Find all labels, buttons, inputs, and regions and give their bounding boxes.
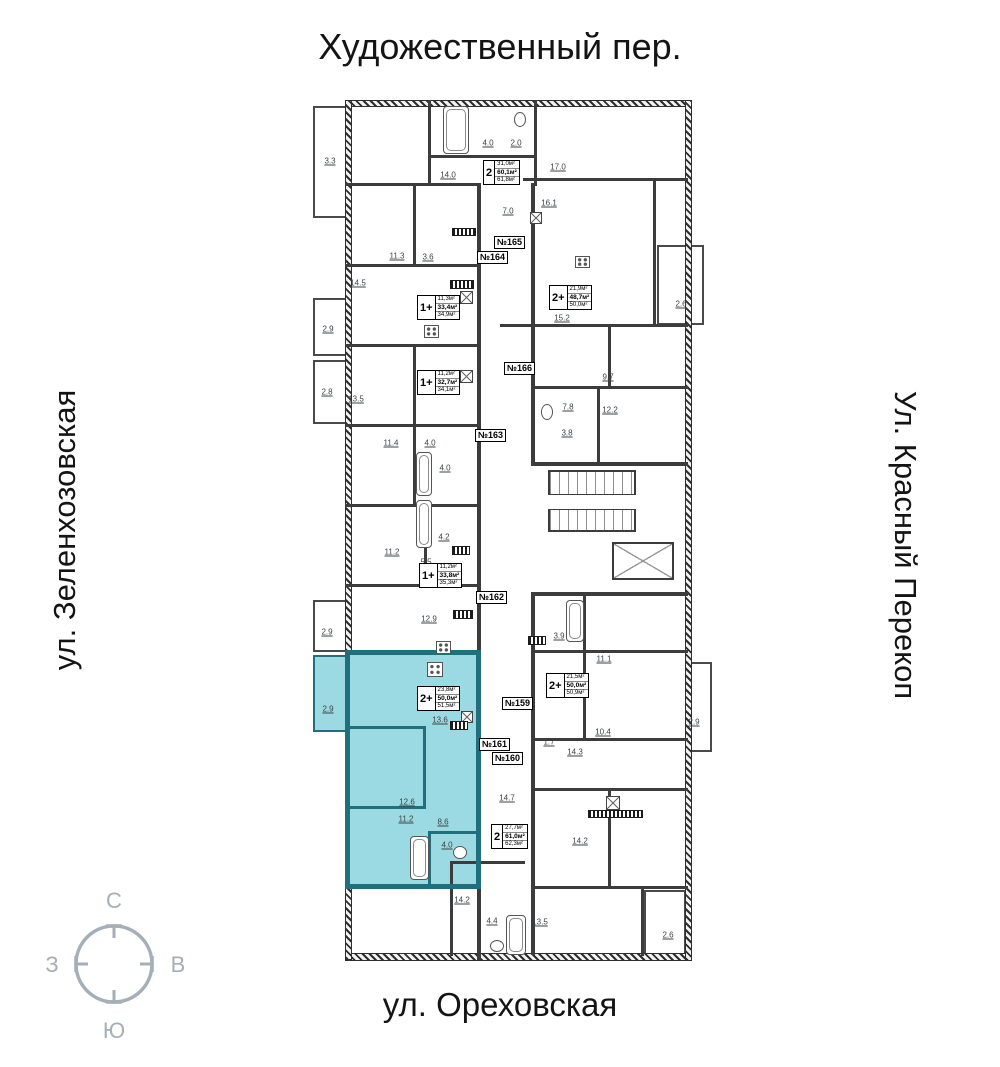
exterior-wall	[345, 887, 352, 960]
apartment-area-value: 32,7м²	[436, 378, 460, 387]
x-mark	[530, 212, 542, 224]
apartment-area-value: 33,4м²	[436, 303, 460, 312]
room-dimension-label: 4.0	[439, 464, 450, 473]
exterior-wall	[345, 100, 692, 107]
room-dimension-label: 2.6	[675, 300, 686, 309]
balcony-selected	[313, 655, 347, 732]
interior-wall	[428, 155, 537, 158]
room-dimension-label: 16.1	[541, 199, 557, 208]
apartment-number-tag: №162	[476, 591, 507, 604]
apartment-area-value: 60,1м²	[495, 168, 519, 177]
apartment-number-tag: №165	[494, 236, 525, 249]
apartment-info-box[interactable]: 227,7м²61,0м²62,3м²	[491, 824, 528, 849]
room-dimension-label: 2.6	[662, 931, 673, 940]
apartment-area-value: 11,2м²	[438, 564, 462, 571]
apartment-area-value: 48,7м²	[568, 293, 592, 302]
room-dimension-label: 13.5	[348, 395, 364, 404]
selected-apartment-wall	[345, 884, 481, 889]
stair-landing	[548, 494, 636, 510]
selected-apartment-wall	[428, 831, 478, 834]
room-dimension-label: 2.9	[322, 325, 333, 334]
room-dimension-label: 9.7	[602, 373, 613, 382]
room-dimension-label: 4.0	[441, 841, 452, 850]
interior-wall	[531, 592, 688, 596]
apartment-info-box[interactable]: 1+11,2м²32,7м²34,1м²	[417, 370, 460, 395]
room-dimension-label: 13.5	[532, 918, 548, 927]
corridor-wall	[531, 594, 535, 955]
room-dimension-label: 2.9	[322, 705, 333, 714]
apartment-area-value: 11,3м²	[436, 296, 460, 303]
apartment-area-value: 50,9м²	[565, 690, 589, 697]
compass-north-label: С	[106, 888, 122, 913]
room-dimension-label: 14.5	[350, 279, 366, 288]
room-dimension-label: 17.0	[550, 163, 566, 172]
apartment-area-value: 23,8м²	[436, 687, 460, 694]
apartment-area-value: 35,3м²	[438, 580, 462, 587]
vent-shaft	[453, 610, 473, 619]
apartment-area-value: 27,7м²	[503, 825, 527, 832]
room-dimension-label: 8.6	[437, 818, 448, 827]
apartment-info-box[interactable]: 231,0м²60,1м²61,8м²	[483, 160, 520, 185]
street-label-left: ул. Зеленхозовская	[47, 390, 83, 671]
vent-shaft	[452, 228, 476, 236]
interior-wall	[534, 100, 537, 186]
apartment-number-tag: №161	[479, 738, 510, 751]
room-dimension-label: 4.4	[486, 917, 497, 926]
apartment-type-label: 2+	[547, 674, 565, 697]
stove-icon	[424, 325, 439, 338]
interior-wall	[641, 886, 644, 956]
balcony	[690, 662, 712, 752]
room-dimension-label: 3.9	[553, 632, 564, 641]
selected-apartment-wall	[423, 726, 426, 809]
vent-shaft	[528, 636, 546, 645]
room-dimension-label: 3.3	[324, 157, 335, 166]
interior-wall	[450, 861, 453, 956]
toilet-icon	[490, 940, 504, 952]
room-dimension-label: 1.7	[543, 738, 554, 747]
balcony	[657, 245, 704, 325]
interior-wall	[531, 462, 688, 466]
apartment-area-value: 33,8м²	[438, 571, 462, 580]
room-dimension-label: 11.2	[385, 548, 400, 557]
bathtub-icon	[443, 106, 469, 154]
stove-icon	[436, 641, 451, 654]
exterior-wall	[685, 100, 692, 961]
apartment-info-box[interactable]: 2+21,5м²50,0м²50,9м²	[546, 673, 589, 698]
apartment-type-label: 1+	[418, 371, 436, 394]
street-label-top: Художественный пер.	[0, 26, 1000, 68]
room-dimension-label: 13.6	[432, 716, 448, 725]
apartment-type-label: 1+	[420, 564, 438, 587]
corridor-wall	[477, 884, 481, 960]
interior-wall	[428, 100, 431, 186]
room-dimension-label: 2.9	[688, 718, 699, 727]
apartment-type-label: 2	[492, 825, 503, 848]
apartment-type-label: 2+	[418, 687, 436, 710]
balcony	[644, 890, 686, 956]
apartment-number-tag: №159	[502, 697, 533, 710]
x-mark	[606, 796, 620, 810]
toilet-icon	[541, 404, 553, 420]
room-dimension-label: 14.2	[572, 837, 588, 846]
bathtub-icon	[566, 600, 584, 642]
apartment-number-tag: №160	[492, 752, 523, 765]
compass-west-label: З	[45, 952, 58, 977]
room-dimension-label: 7.0	[502, 207, 513, 216]
street-label-right: Ул. Красный Перекоп	[887, 391, 923, 699]
interior-wall	[413, 344, 416, 427]
x-mark	[460, 370, 473, 383]
compass-rose: С Ю З В	[42, 886, 192, 1051]
room-dimension-label: 12.2	[602, 406, 618, 415]
room-dimension-label: 14.7	[499, 794, 515, 803]
apartment-info-box[interactable]: 1+11,3м²33,4м²34,9м²	[417, 295, 460, 320]
apartment-area-value: 21,5м²	[565, 674, 589, 681]
interior-wall	[413, 183, 416, 267]
apartment-info-box[interactable]: 1+11,2м²33,8м²35,3м²	[419, 563, 462, 588]
room-dimension-label: 14.3	[567, 748, 583, 757]
stove-icon	[575, 256, 590, 268]
apartment-info-box[interactable]: 2+23,8м²50,0м²51,5м²	[417, 686, 460, 711]
apartment-area-value: 50,0м²	[565, 681, 589, 690]
apartment-type-label: 2	[484, 161, 495, 184]
stove-icon	[427, 662, 443, 677]
room-dimension-label: 11.1	[597, 655, 612, 664]
room-dimension-label: 4.0	[424, 439, 435, 448]
room-dimension-label: 2.9	[321, 628, 332, 637]
elevator-shaft	[612, 542, 674, 580]
apartment-area-value: 34,1м²	[436, 387, 460, 394]
room-dimension-label: 2.8	[321, 388, 332, 397]
room-dimension-label: 11.4	[384, 439, 399, 448]
apartment-type-label: 2+	[550, 286, 568, 309]
room-dimension-label: 12.9	[421, 615, 437, 624]
balcony	[313, 600, 347, 652]
bathtub-icon	[506, 915, 526, 955]
apartment-info-box[interactable]: 2+21,9м²48,7м²50,0м²	[549, 285, 592, 310]
apartment-number-tag: №164	[477, 251, 508, 264]
room-dimension-label: 7.8	[562, 403, 573, 412]
room-dimension-label: 12.6	[399, 798, 415, 807]
apartment-area-value: 50,0м²	[568, 302, 592, 309]
room-dimension-label: 3.6	[422, 253, 433, 262]
compass-east-label: В	[171, 952, 186, 977]
room-dimension-label: 3.8	[561, 429, 572, 438]
vent-shaft	[588, 810, 643, 818]
room-dimension-label: 11.2	[399, 815, 414, 824]
apartment-number-tag: №163	[475, 429, 506, 442]
selected-apartment-wall	[345, 650, 481, 655]
bathtub-icon	[416, 452, 432, 496]
compass-south-label: Ю	[103, 1018, 125, 1043]
interior-wall	[523, 178, 688, 181]
selected-apartment-wall	[345, 650, 350, 889]
vent-shaft	[450, 721, 468, 730]
apartment-area-value: 61,8м²	[495, 177, 519, 184]
apartment-area-value: 31,0м²	[495, 161, 519, 168]
apartment-area-value: 62,3м²	[503, 841, 527, 848]
apartment-area-value: 61,0м²	[503, 832, 527, 841]
selected-apartment-wall	[345, 726, 426, 729]
room-dimension-label: 10.4	[595, 728, 611, 737]
interior-wall	[653, 178, 656, 327]
room-dimension-label: 4.2	[438, 533, 449, 542]
room-dimension-label: 2.0	[510, 139, 521, 148]
apartment-area-value: 34,9м²	[436, 312, 460, 319]
apartment-number-tag: №166	[504, 362, 535, 375]
apartment-type-label: 1+	[418, 296, 436, 319]
interior-wall	[597, 386, 600, 465]
floorplan-canvas: Художественный пер. ул. Ореховская ул. З…	[0, 0, 1000, 1067]
interior-wall	[450, 861, 525, 864]
room-dimension-label: 15.2	[554, 314, 570, 323]
apartment-area-value: 11,2м²	[436, 371, 460, 378]
x-mark	[460, 291, 473, 304]
selected-apartment-wall	[476, 650, 481, 889]
apartment-area-value: 51,5м²	[436, 703, 460, 710]
bathtub-icon	[416, 500, 432, 548]
interior-wall	[500, 324, 688, 327]
apartment-area-value: 21,9м²	[568, 286, 592, 293]
room-dimension-label: 14.0	[440, 171, 456, 180]
bathtub-icon	[410, 836, 429, 880]
room-dimension-label: 14.2	[454, 896, 470, 905]
interior-wall	[531, 650, 688, 653]
toilet-icon	[453, 846, 467, 859]
room-dimension-label: 11.3	[390, 252, 405, 261]
toilet-icon	[514, 112, 526, 127]
room-dimension-label: 4.0	[482, 139, 493, 148]
apartment-area-value: 50,0м²	[436, 694, 460, 703]
vent-shaft	[450, 280, 474, 289]
vent-shaft	[452, 546, 470, 555]
